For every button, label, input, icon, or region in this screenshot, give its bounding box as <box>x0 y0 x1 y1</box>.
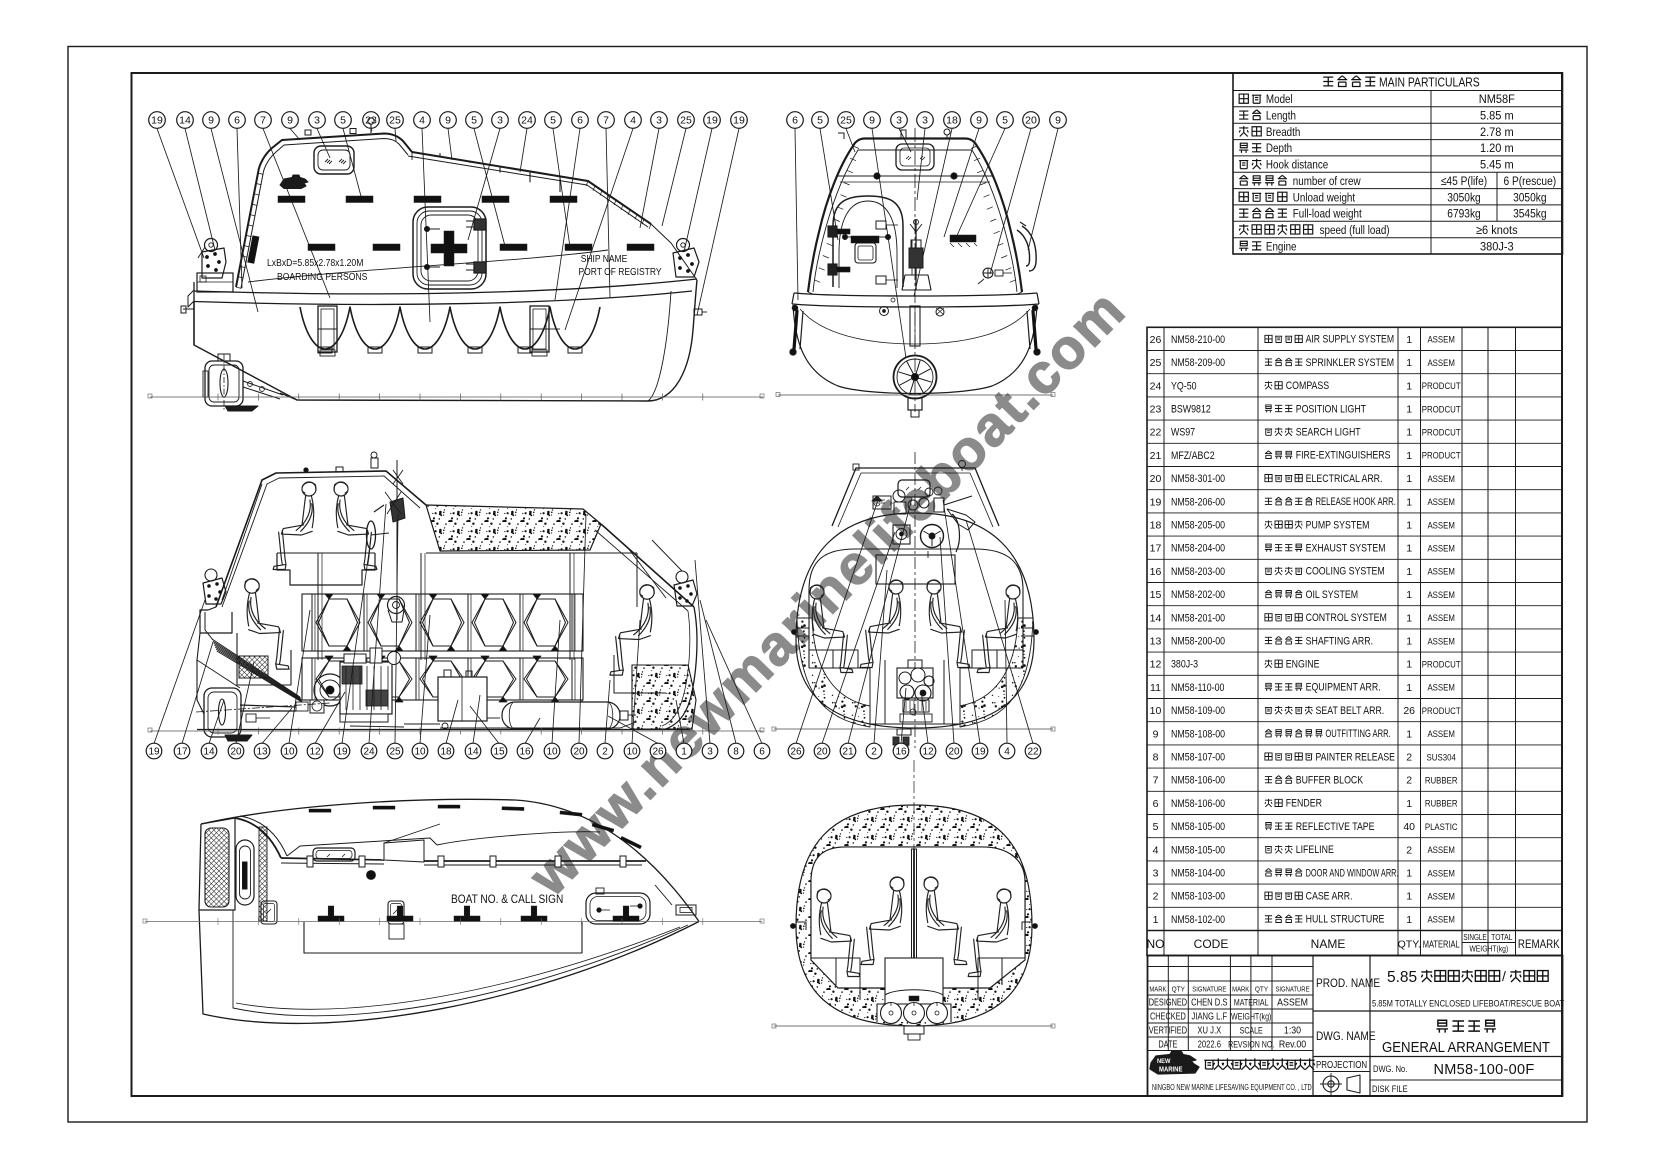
svg-text:ASSEM: ASSEM <box>1427 728 1455 739</box>
svg-text:SEAT BELT ARR.: SEAT BELT ARR. <box>1316 705 1385 717</box>
svg-text:11: 11 <box>1150 682 1161 694</box>
svg-text:1: 1 <box>1406 566 1412 578</box>
svg-text:17: 17 <box>176 746 188 757</box>
svg-text:18: 18 <box>440 746 452 757</box>
svg-text:1: 1 <box>681 746 687 757</box>
svg-text:9: 9 <box>1055 115 1061 127</box>
svg-text:20: 20 <box>573 746 585 757</box>
svg-text:21: 21 <box>1150 450 1162 462</box>
svg-text:DWG. NAME: DWG. NAME <box>1316 1030 1376 1043</box>
svg-text:25: 25 <box>840 115 852 127</box>
svg-text:WS97: WS97 <box>1171 427 1195 439</box>
svg-text:SCALE: SCALE <box>1240 1025 1263 1036</box>
svg-text:NM58-204-00: NM58-204-00 <box>1171 543 1226 555</box>
svg-text:MARK: MARK <box>1232 986 1249 994</box>
svg-text:24: 24 <box>521 115 533 127</box>
svg-text:Depth: Depth <box>1266 142 1292 155</box>
svg-text:19: 19 <box>151 115 163 127</box>
svg-text:PUMP SYSTEM: PUMP SYSTEM <box>1306 519 1370 531</box>
svg-text:8: 8 <box>733 746 739 757</box>
svg-text:EXHAUST SYSTEM: EXHAUST SYSTEM <box>1306 543 1386 555</box>
svg-text:FIRE-EXTINGUISHERS: FIRE-EXTINGUISHERS <box>1296 450 1391 462</box>
svg-text:BSW9812: BSW9812 <box>1171 404 1211 416</box>
svg-text:LxBxD=5.85x2.78x1.20M: LxBxD=5.85x2.78x1.20M <box>267 257 363 269</box>
svg-text:ASSEM: ASSEM <box>1427 496 1455 507</box>
svg-text:NM58-209-00: NM58-209-00 <box>1171 357 1226 369</box>
svg-text:2022.6: 2022.6 <box>1198 1038 1221 1049</box>
svg-text:NM58-301-00: NM58-301-00 <box>1171 473 1226 485</box>
svg-text:26: 26 <box>1150 334 1162 346</box>
svg-text:4: 4 <box>1004 746 1010 757</box>
svg-text:13: 13 <box>256 746 268 757</box>
svg-text:NM58-202-00: NM58-202-00 <box>1171 589 1226 601</box>
svg-text:3050kg: 3050kg <box>1447 192 1480 205</box>
svg-text:1: 1 <box>1406 543 1412 555</box>
svg-text:PRODCUT: PRODCUT <box>1422 380 1461 391</box>
svg-text:NM58-200-00: NM58-200-00 <box>1171 636 1226 648</box>
svg-text:DESIGNED: DESIGNED <box>1149 997 1187 1008</box>
svg-text:Hook distance: Hook distance <box>1266 159 1328 172</box>
svg-text:6: 6 <box>792 115 798 127</box>
svg-text:1: 1 <box>1406 520 1412 532</box>
svg-text:6: 6 <box>759 746 765 757</box>
svg-text:WEIGHT(kg): WEIGHT(kg) <box>1231 1011 1271 1022</box>
svg-text:MATERIAL: MATERIAL <box>1423 938 1460 949</box>
svg-text:25: 25 <box>389 746 401 757</box>
svg-text:4: 4 <box>419 115 425 127</box>
svg-text:RUBBER: RUBBER <box>1425 798 1458 809</box>
svg-text:10: 10 <box>414 746 426 757</box>
svg-text:EQUIPMENT ARR.: EQUIPMENT ARR. <box>1306 682 1381 694</box>
svg-text:7: 7 <box>1153 775 1159 787</box>
svg-text:HULL STRUCTURE: HULL STRUCTURE <box>1306 914 1385 926</box>
svg-text:ASSEM: ASSEM <box>1427 543 1455 554</box>
svg-text:NM58-103-00: NM58-103-00 <box>1171 891 1226 903</box>
svg-text:NM58-109-00: NM58-109-00 <box>1171 705 1226 717</box>
svg-text:PRODCUT: PRODCUT <box>1422 404 1461 415</box>
svg-text:9: 9 <box>287 115 293 127</box>
svg-text:GENERAL ARRANGEMENT: GENERAL ARRANGEMENT <box>1382 1038 1550 1055</box>
svg-text:3: 3 <box>896 115 902 127</box>
svg-text:SEARCH LIGHT: SEARCH LIGHT <box>1296 427 1361 439</box>
svg-text:7: 7 <box>603 115 609 127</box>
svg-text:3: 3 <box>707 746 713 757</box>
svg-text:9: 9 <box>1153 728 1159 740</box>
svg-text:DOOR AND WINDOW ARR.: DOOR AND WINDOW ARR. <box>1306 867 1399 879</box>
svg-text:22: 22 <box>1027 746 1039 757</box>
svg-text:speed (full load): speed (full load) <box>1320 224 1390 237</box>
svg-text:ASSEM: ASSEM <box>1427 473 1455 484</box>
svg-text:20: 20 <box>948 746 960 757</box>
svg-text:1: 1 <box>1406 612 1412 624</box>
svg-text:MFZ/ABC2: MFZ/ABC2 <box>1171 450 1215 462</box>
svg-text:10: 10 <box>546 746 558 757</box>
svg-text:5.85: 5.85 <box>1387 969 1417 986</box>
svg-text:NM58-105-00: NM58-105-00 <box>1171 821 1226 833</box>
svg-text:CONTROL SYSTEM: CONTROL SYSTEM <box>1306 612 1387 624</box>
svg-text:NEW: NEW <box>1157 1058 1171 1066</box>
svg-text:22: 22 <box>1150 427 1162 439</box>
svg-text:3: 3 <box>1153 868 1159 880</box>
svg-text:6: 6 <box>577 115 583 127</box>
svg-text:POSITION LIGHT: POSITION LIGHT <box>1296 403 1366 415</box>
svg-text:MARK: MARK <box>1149 986 1166 994</box>
svg-text:40: 40 <box>1403 821 1415 833</box>
svg-text:2: 2 <box>1406 775 1412 787</box>
svg-text:ASSEM: ASSEM <box>1427 636 1455 647</box>
svg-text:3: 3 <box>497 115 503 127</box>
svg-text:BUFFER BLOCK: BUFFER BLOCK <box>1296 775 1364 787</box>
svg-text:6: 6 <box>234 115 240 127</box>
svg-text:4: 4 <box>1153 844 1159 856</box>
svg-text:number of crew: number of crew <box>1293 175 1361 188</box>
svg-text:NM58-104-00: NM58-104-00 <box>1171 868 1226 880</box>
svg-text:JIANG L.F: JIANG L.F <box>1192 1011 1228 1022</box>
svg-text:9: 9 <box>976 115 982 127</box>
svg-text:1: 1 <box>1406 450 1412 462</box>
svg-text:25: 25 <box>1150 357 1162 369</box>
svg-text:24: 24 <box>1150 380 1162 392</box>
svg-text:PRODCUT: PRODCUT <box>1422 659 1461 670</box>
svg-text:PRODUCT: PRODUCT <box>1422 450 1461 461</box>
svg-text:2: 2 <box>871 746 877 757</box>
svg-text:CASE ARR.: CASE ARR. <box>1306 891 1353 903</box>
svg-text:1: 1 <box>1406 357 1412 369</box>
svg-text:20: 20 <box>816 746 828 757</box>
svg-text:5.85 m: 5.85 m <box>1480 110 1514 122</box>
svg-text:19: 19 <box>336 746 348 757</box>
svg-text:ASSEM: ASSEM <box>1427 914 1455 925</box>
svg-text:BOAT NO. & CALL SIGN: BOAT NO. & CALL SIGN <box>451 893 563 906</box>
svg-text:23: 23 <box>1150 404 1162 416</box>
svg-text:YQ-50: YQ-50 <box>1171 381 1197 393</box>
svg-text:ASSEM: ASSEM <box>1427 589 1455 600</box>
svg-text:SIGNATURE: SIGNATURE <box>1275 986 1309 994</box>
svg-text:NM58-201-00: NM58-201-00 <box>1171 613 1226 625</box>
svg-text:NM58-106-00: NM58-106-00 <box>1171 775 1226 787</box>
svg-text:BOARDING PERSONS: BOARDING PERSONS <box>277 271 367 283</box>
svg-text:ELECTRICAL ARR.: ELECTRICAL ARR. <box>1306 473 1383 485</box>
svg-text:26: 26 <box>652 746 664 757</box>
svg-text:24: 24 <box>363 746 375 757</box>
svg-text:20: 20 <box>230 746 242 757</box>
svg-text:QTY: QTY <box>1172 986 1186 994</box>
svg-text:ASSEM: ASSEM <box>1427 334 1455 345</box>
svg-text:1: 1 <box>1406 914 1412 926</box>
svg-text:≤45 P(life): ≤45 P(life) <box>1441 175 1488 188</box>
svg-text:RELEASE HOOK ARR.: RELEASE HOOK ARR. <box>1316 496 1396 509</box>
svg-text:1: 1 <box>1406 589 1412 601</box>
svg-text:ASSEM: ASSEM <box>1427 566 1455 577</box>
svg-text:10: 10 <box>283 746 295 757</box>
svg-text:2: 2 <box>1153 891 1159 903</box>
svg-text:NM58-107-00: NM58-107-00 <box>1171 752 1226 764</box>
svg-text:2.78 m: 2.78 m <box>1480 127 1514 139</box>
svg-text:5: 5 <box>1153 821 1159 833</box>
svg-text:9: 9 <box>869 115 875 127</box>
svg-text:SUS304: SUS304 <box>1427 752 1456 763</box>
svg-text:21: 21 <box>842 746 854 757</box>
svg-text:ASSEM: ASSEM <box>1427 844 1455 855</box>
svg-text:3050kg: 3050kg <box>1513 192 1546 205</box>
svg-text:NINGBO NEW MARINE LIFESAVING E: NINGBO NEW MARINE LIFESAVING EQUIPMENT C… <box>1152 1084 1312 1092</box>
svg-text:SHAFTING ARR.: SHAFTING ARR. <box>1306 635 1373 647</box>
svg-text:6: 6 <box>1153 798 1159 810</box>
svg-text:QTY.: QTY. <box>1398 939 1421 951</box>
svg-text:COOLING SYSTEM: COOLING SYSTEM <box>1306 566 1385 578</box>
svg-text:380J-3: 380J-3 <box>1171 659 1198 671</box>
svg-text:PROJECTION: PROJECTION <box>1316 1059 1367 1070</box>
svg-text:5: 5 <box>1002 115 1008 127</box>
svg-text:ASSEM: ASSEM <box>1427 612 1455 623</box>
svg-text:19: 19 <box>1150 496 1162 508</box>
svg-text:RUBBER: RUBBER <box>1425 775 1458 786</box>
svg-text:CHEN D.S: CHEN D.S <box>1191 997 1228 1008</box>
svg-text:Model: Model <box>1266 93 1293 106</box>
svg-text:LIFELINE: LIFELINE <box>1296 844 1334 856</box>
svg-text:NM58-108-00: NM58-108-00 <box>1171 729 1226 741</box>
svg-text:XU J.X: XU J.X <box>1197 1025 1221 1036</box>
svg-text:15: 15 <box>493 746 505 757</box>
svg-text:NM58-210-00: NM58-210-00 <box>1171 334 1226 346</box>
svg-text:PROD. NAME: PROD. NAME <box>1316 977 1380 990</box>
svg-text:15: 15 <box>1150 589 1162 601</box>
svg-text:NM58-203-00: NM58-203-00 <box>1171 566 1226 578</box>
svg-text:12: 12 <box>309 746 321 757</box>
svg-text:14: 14 <box>467 746 479 757</box>
svg-text:2: 2 <box>1406 752 1412 764</box>
svg-text:19: 19 <box>974 746 986 757</box>
svg-text:Unload weight: Unload weight <box>1293 191 1355 204</box>
svg-text:19: 19 <box>733 115 745 127</box>
svg-text:2: 2 <box>1406 844 1412 856</box>
svg-text:19: 19 <box>706 115 718 127</box>
svg-text:Rev.00: Rev.00 <box>1279 1039 1306 1050</box>
svg-text:9: 9 <box>445 115 451 127</box>
svg-text:1: 1 <box>1406 868 1412 880</box>
svg-text:25: 25 <box>389 115 401 127</box>
svg-text:19: 19 <box>148 746 160 757</box>
svg-text:20: 20 <box>1150 473 1162 485</box>
svg-text:PAINTER RELEASE: PAINTER RELEASE <box>1316 751 1396 763</box>
svg-text:COMPASS: COMPASS <box>1286 380 1330 392</box>
svg-text:SPRINKLER SYSTEM: SPRINKLER SYSTEM <box>1306 357 1394 369</box>
svg-text:12: 12 <box>1150 659 1162 671</box>
svg-text:1: 1 <box>1406 473 1412 485</box>
svg-text:ENGINE: ENGINE <box>1286 659 1320 671</box>
svg-text:NM58-102-00: NM58-102-00 <box>1171 914 1226 926</box>
svg-text:ASSEM: ASSEM <box>1427 357 1455 368</box>
svg-text:26: 26 <box>1403 705 1415 717</box>
svg-text:3: 3 <box>314 115 320 127</box>
svg-text:FENDER: FENDER <box>1286 798 1322 810</box>
svg-text:NO: NO <box>1147 937 1165 951</box>
svg-text:MARINE: MARINE <box>1159 1066 1183 1074</box>
svg-text:5: 5 <box>471 115 477 127</box>
svg-text:REVSION NO.: REVSION NO. <box>1228 1038 1274 1049</box>
svg-text:NM58-100-00F: NM58-100-00F <box>1433 1062 1534 1078</box>
svg-text:WEIGHT(kg): WEIGHT(kg) <box>1469 944 1508 954</box>
svg-text:1.20 m: 1.20 m <box>1480 143 1514 155</box>
svg-text:CHECKED: CHECKED <box>1150 1011 1186 1022</box>
svg-text:ASSEM: ASSEM <box>1427 682 1455 693</box>
svg-text:Engine: Engine <box>1266 240 1297 253</box>
svg-text:Full-load weight: Full-load weight <box>1293 208 1362 221</box>
svg-text:NM58-205-00: NM58-205-00 <box>1171 520 1226 532</box>
svg-text:AIR SUPPLY SYSTEM: AIR SUPPLY SYSTEM <box>1306 334 1394 346</box>
svg-text:7: 7 <box>260 115 266 127</box>
svg-text:PRODUCT: PRODUCT <box>1422 705 1461 716</box>
svg-text:OUTFITTING ARR.: OUTFITTING ARR. <box>1325 728 1390 741</box>
svg-text:Length: Length <box>1266 110 1296 123</box>
svg-text:ASSEM: ASSEM <box>1427 520 1455 531</box>
svg-text:Breadth: Breadth <box>1266 126 1300 139</box>
svg-text:5.45 m: 5.45 m <box>1480 159 1514 171</box>
svg-text:1: 1 <box>1406 728 1412 740</box>
svg-text:VERTIFIED: VERTIFIED <box>1149 1025 1187 1036</box>
svg-text:NM58-206-00: NM58-206-00 <box>1171 497 1226 509</box>
svg-text:1: 1 <box>1406 798 1412 810</box>
svg-text:1: 1 <box>1406 496 1412 508</box>
svg-text:MATERIAL: MATERIAL <box>1234 997 1269 1008</box>
svg-text:10: 10 <box>626 746 638 757</box>
svg-text:17: 17 <box>1150 543 1162 555</box>
svg-text:18: 18 <box>1150 520 1162 532</box>
svg-text:PORT OF REGISTRY: PORT OF REGISTRY <box>578 266 661 277</box>
svg-text:5: 5 <box>817 115 823 127</box>
svg-text:16: 16 <box>519 746 531 757</box>
svg-text:5: 5 <box>340 115 346 127</box>
svg-text:3: 3 <box>656 115 662 127</box>
svg-text:ASSEM: ASSEM <box>1427 891 1455 902</box>
svg-text:1: 1 <box>1406 404 1412 416</box>
svg-text:NM58-105-00: NM58-105-00 <box>1171 845 1226 857</box>
svg-text:DISK FILE: DISK FILE <box>1372 1083 1408 1094</box>
svg-text:SIGNATURE: SIGNATURE <box>1192 986 1226 994</box>
svg-text:NM58F: NM58F <box>1479 94 1515 106</box>
svg-text:PRODCUT: PRODCUT <box>1422 427 1461 438</box>
svg-text:5.85M TOTALLY ENCLOSED LIFEBOA: 5.85M TOTALLY ENCLOSED LIFEBOAT/RESCUE B… <box>1372 998 1564 1009</box>
svg-text:CODE: CODE <box>1194 937 1229 951</box>
svg-text:8: 8 <box>1153 752 1159 764</box>
svg-text:1: 1 <box>1406 427 1412 439</box>
svg-text:1: 1 <box>1153 914 1159 926</box>
svg-text:REFLECTIVE TAPE: REFLECTIVE TAPE <box>1296 821 1375 833</box>
svg-text:1: 1 <box>1406 334 1412 346</box>
svg-text:/: / <box>1502 968 1506 984</box>
svg-text:1: 1 <box>1406 636 1412 648</box>
svg-text:16: 16 <box>1150 566 1162 578</box>
svg-text:380J-3: 380J-3 <box>1480 241 1514 253</box>
svg-text:5: 5 <box>550 115 556 127</box>
svg-text:1: 1 <box>1406 891 1412 903</box>
svg-text:1: 1 <box>1406 380 1412 392</box>
svg-text:≥6 knots: ≥6 knots <box>1476 225 1518 237</box>
svg-text:20: 20 <box>1025 115 1037 127</box>
svg-text:14: 14 <box>203 746 215 757</box>
svg-text:1: 1 <box>1406 682 1412 694</box>
svg-text:6 P(rescue): 6 P(rescue) <box>1503 175 1556 188</box>
svg-text:1: 1 <box>1406 659 1412 671</box>
svg-text:ASSEM: ASSEM <box>1427 868 1455 879</box>
svg-text:2: 2 <box>602 746 608 757</box>
svg-text:10: 10 <box>1150 705 1162 717</box>
svg-text:9: 9 <box>208 115 214 127</box>
svg-text:DATE: DATE <box>1158 1038 1177 1049</box>
svg-text:OIL SYSTEM: OIL SYSTEM <box>1306 589 1358 601</box>
svg-text:16: 16 <box>895 746 907 757</box>
svg-text:DWG. No.: DWG. No. <box>1373 1063 1407 1074</box>
svg-text:3: 3 <box>922 115 928 127</box>
svg-text:26: 26 <box>790 746 802 757</box>
svg-text:3545kg: 3545kg <box>1513 208 1546 221</box>
svg-text:ASSEM: ASSEM <box>1277 997 1308 1008</box>
svg-text:6793kg: 6793kg <box>1447 208 1480 221</box>
svg-text:12: 12 <box>922 746 934 757</box>
svg-text:NAME: NAME <box>1311 937 1346 951</box>
svg-text:4: 4 <box>630 115 636 127</box>
svg-text:14: 14 <box>1150 612 1162 624</box>
svg-text:PLASTIC: PLASTIC <box>1425 821 1458 832</box>
svg-text:NM58-110-00: NM58-110-00 <box>1171 682 1225 694</box>
svg-text:NM58-106-00: NM58-106-00 <box>1171 798 1226 810</box>
svg-text:13: 13 <box>1150 636 1162 648</box>
svg-text:TOTAL: TOTAL <box>1491 932 1513 942</box>
svg-text:SINGLE: SINGLE <box>1463 932 1486 942</box>
svg-text:QTY: QTY <box>1255 986 1269 994</box>
svg-text:14: 14 <box>179 115 191 127</box>
svg-text:SHIP NAME: SHIP NAME <box>581 253 628 264</box>
svg-text:25: 25 <box>680 115 692 127</box>
svg-text:REMARK: REMARK <box>1518 938 1560 951</box>
svg-text:1:30: 1:30 <box>1284 1025 1301 1036</box>
svg-text:18: 18 <box>946 115 958 127</box>
svg-text:MAIN PARTICULARS: MAIN PARTICULARS <box>1379 75 1480 89</box>
